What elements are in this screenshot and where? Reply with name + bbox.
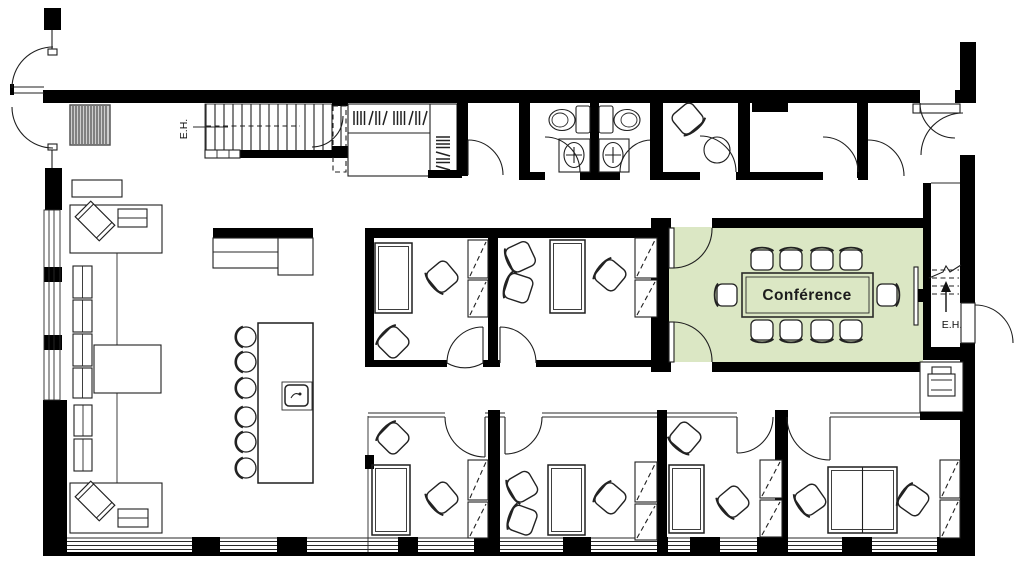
conference-chair-icon <box>840 248 863 270</box>
office-chair-icon <box>714 483 752 521</box>
office-chair-icon <box>894 481 932 519</box>
stair-left-label: E.H. <box>178 119 190 139</box>
round-table <box>704 137 730 163</box>
stair-right-label: E.H. <box>942 319 962 331</box>
windows-bottom <box>67 537 960 552</box>
hallway-door <box>468 140 503 175</box>
office-a <box>374 240 488 361</box>
office-door-arc <box>737 417 773 453</box>
conference-chair-icon <box>751 320 774 342</box>
storage-cabinet <box>940 460 960 498</box>
office-d <box>503 462 657 540</box>
door-leaf <box>669 228 674 268</box>
conference-chair-icon <box>780 248 803 270</box>
printer-icon <box>928 367 955 396</box>
door-leaf <box>669 322 674 362</box>
desk <box>375 243 412 313</box>
conference-chair-icon <box>811 248 834 270</box>
office-b <box>501 238 657 317</box>
tray <box>118 209 147 227</box>
tray <box>118 509 148 527</box>
floor-plan: E.H. <box>0 0 1024 564</box>
conference-chair-icon <box>780 320 803 342</box>
storage-cabinet <box>468 240 488 278</box>
storage-cabinet <box>468 280 488 317</box>
stair-break-line <box>929 265 961 278</box>
desk <box>372 465 410 535</box>
office-chair-icon <box>505 502 539 537</box>
kitchen-island <box>236 323 313 483</box>
office-chair-icon <box>374 323 412 361</box>
conference-chair-icon <box>811 320 834 342</box>
conference-room-label: Conférence <box>762 287 851 304</box>
bar-stool-icon <box>236 458 256 478</box>
office-chair-icon <box>501 271 535 306</box>
door-leaf <box>44 8 61 30</box>
office-chair-icon <box>423 479 461 517</box>
conference-table: Conférence <box>742 273 873 317</box>
office-chair-icon <box>666 419 704 457</box>
floor-plan-page: E.H. <box>0 0 1024 564</box>
coat-closet <box>332 96 468 178</box>
office-chair-icon <box>503 468 540 505</box>
exit-door-arc <box>975 305 1013 343</box>
vestibule-door-arc <box>868 140 904 176</box>
lounge-table <box>94 345 161 393</box>
sink-icon <box>559 139 590 172</box>
storage-cabinet <box>760 460 782 498</box>
vent-shaft <box>70 105 110 145</box>
double-desk <box>828 467 897 533</box>
storage-cabinet <box>468 502 488 538</box>
stair-door-arc <box>312 116 343 147</box>
storage-cabinet <box>635 504 657 540</box>
stairs-main <box>205 104 350 158</box>
conference-chair-icon <box>840 320 863 342</box>
storage-cabinet <box>468 460 488 500</box>
office-door-arc <box>500 327 536 363</box>
phone-booth <box>650 92 740 180</box>
office-door-arc <box>447 327 483 368</box>
vestibule <box>868 103 963 176</box>
storage-room <box>738 92 868 180</box>
storage-door-arc <box>823 137 858 172</box>
lounge <box>70 180 162 533</box>
office-e <box>666 419 782 537</box>
storage-cabinet <box>940 500 960 538</box>
storage-cabinet <box>635 462 657 502</box>
storage-cabinet <box>635 238 657 278</box>
door-swing-arc <box>12 107 53 148</box>
conference-chair-icon <box>715 284 737 307</box>
booth-chair-icon <box>669 100 707 138</box>
printer-closet <box>920 362 963 420</box>
service-counter <box>213 228 313 275</box>
toilet-icon <box>549 106 590 133</box>
office-door-arc <box>445 417 485 457</box>
bar-stool-icon <box>236 407 256 427</box>
entry-doors-top-left <box>10 8 61 168</box>
banquette-bench <box>73 266 92 471</box>
desk <box>550 240 585 313</box>
bar-stool-icon <box>236 378 256 398</box>
door-swing-arc <box>12 47 53 88</box>
bar-stool-icon <box>236 352 256 372</box>
bar-stool-icon <box>236 432 256 452</box>
office-c <box>372 419 488 538</box>
bar-stool-icon <box>236 327 256 347</box>
stairs-left-label: E.H. <box>178 119 228 139</box>
storage-cabinet <box>635 280 657 317</box>
office-chair-icon <box>423 258 461 296</box>
office-chair-icon <box>502 239 538 276</box>
office-chair-icon <box>791 481 829 519</box>
conference-chair-icon <box>877 284 899 307</box>
office-f <box>791 460 960 538</box>
storage-cabinet <box>760 500 782 537</box>
sink-icon <box>282 382 312 410</box>
office-door-arc <box>787 417 830 460</box>
office-chair-icon <box>591 479 629 517</box>
office-door-arc <box>505 417 542 454</box>
desk <box>548 465 585 535</box>
console-shelf <box>72 180 122 197</box>
conference-chair-icon <box>751 248 774 270</box>
toilet-icon <box>599 106 640 133</box>
exit-door-leaf <box>961 303 975 343</box>
windows-left <box>44 210 60 400</box>
entry-door-arc <box>921 113 963 155</box>
office-chair-icon <box>591 256 629 294</box>
office-chair-icon <box>374 419 412 457</box>
desk <box>669 465 704 533</box>
restrooms <box>519 95 663 180</box>
